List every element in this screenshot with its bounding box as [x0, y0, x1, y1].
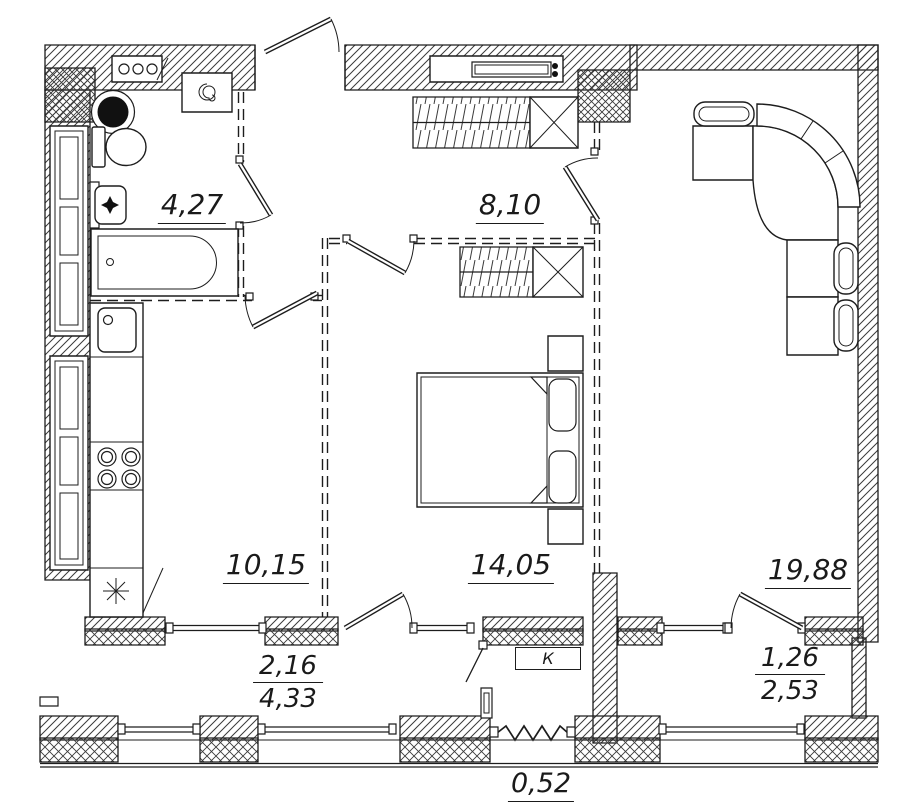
bedroom-wardrobe: [460, 247, 583, 297]
pillow: [549, 451, 576, 503]
sofa-seat: [693, 126, 753, 180]
toilet: [92, 127, 146, 167]
label-kitchen-area: 10,15: [223, 548, 309, 584]
hall-kitchen-door: [245, 293, 317, 327]
zigzag-opening: [490, 726, 575, 740]
riser-block: [112, 56, 168, 82]
living-balcony-door: [731, 594, 802, 628]
nightstand: [548, 509, 583, 544]
pillow: [549, 379, 576, 431]
dashed-partitions: [90, 92, 600, 617]
corner-column: [45, 68, 95, 122]
corner-sofa: [693, 102, 860, 355]
bedroom-door: [348, 241, 414, 273]
label-balcony-right-area: 1,26 2,53: [755, 645, 825, 704]
sofa-back-cushion: [694, 102, 754, 126]
hall-wardrobe: [413, 97, 578, 148]
label-bedroom-area: 14,05: [468, 548, 554, 584]
sofa-back-cushion: [834, 243, 858, 294]
wash-basin: [90, 182, 126, 228]
kitchen-sink: [98, 308, 136, 352]
bathtub: [91, 229, 238, 296]
kitchen-fixtures: [90, 303, 163, 617]
bathroom-fixtures: [90, 56, 238, 296]
label-balcony-left-area: 2,16 4,33: [253, 653, 323, 712]
balcony-edge-tick: [40, 697, 58, 706]
window-sash-mark: [466, 641, 492, 718]
sofa-seat: [787, 240, 838, 297]
label-balcony-small-area: 0,52: [508, 768, 574, 802]
radiator: [472, 62, 551, 77]
bed: [417, 336, 583, 544]
counter-leader-line: [143, 568, 163, 613]
bedroom-balcony-door: [345, 594, 412, 628]
hall-living-door: [565, 158, 598, 220]
sofa-seat: [787, 297, 838, 355]
sofa-back-cushion: [834, 300, 858, 351]
floor-plan: 4,27 8,10 10,15 14,05 19,88 2,16 4,33 1,…: [0, 0, 900, 807]
washing-machine: [182, 73, 232, 112]
hall-living-column: [578, 70, 630, 122]
nightstand: [548, 336, 583, 371]
entrance-door: [265, 19, 339, 52]
label-hallway-area: 8,10: [476, 188, 544, 224]
ac-unit-mark: К: [515, 647, 581, 670]
bathroom-door: [240, 164, 271, 223]
label-bathroom-area: 4,27: [158, 188, 226, 224]
wall-niche: [430, 56, 563, 82]
label-living-area: 19,88: [765, 553, 851, 589]
